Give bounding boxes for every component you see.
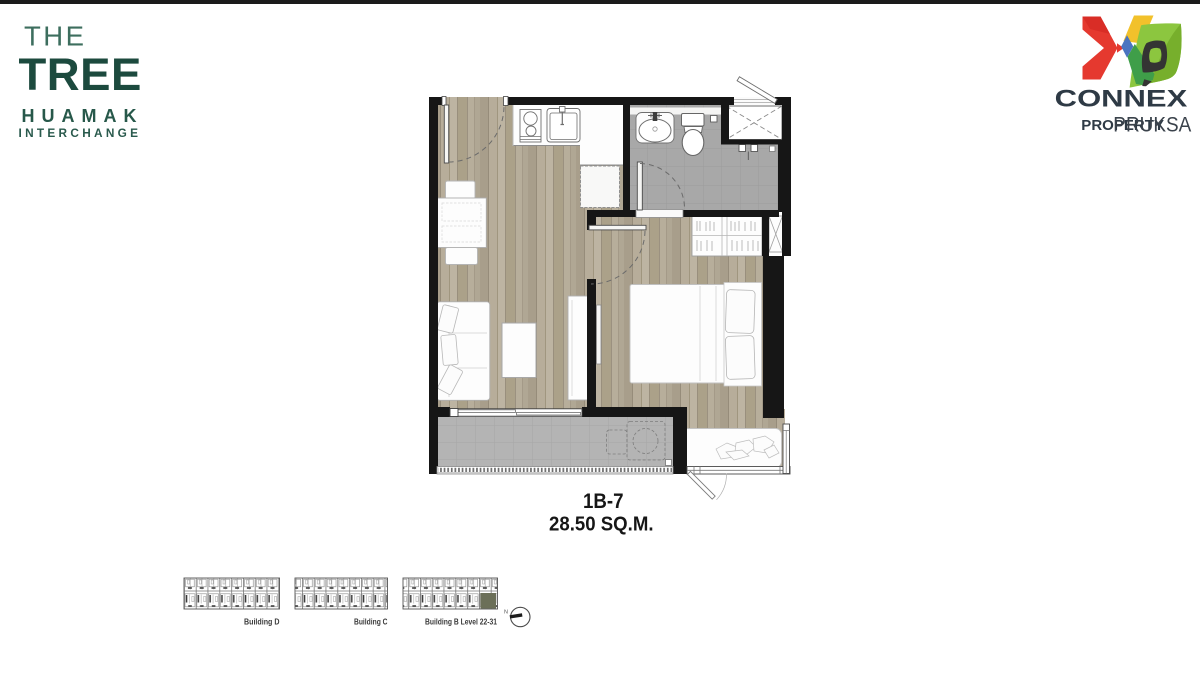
svg-text:Building D: Building D: [244, 618, 280, 627]
svg-text:N: N: [504, 610, 508, 616]
svg-text:PRUKSA: PRUKSA: [1113, 112, 1192, 136]
svg-text:1B-7: 1B-7: [583, 489, 624, 513]
svg-text:Building B Level 22-31: Building B Level 22-31: [425, 618, 498, 627]
svg-text:28.50 SQ.M.: 28.50 SQ.M.: [549, 514, 654, 536]
svg-text:INTERCHANGE: INTERCHANGE: [19, 126, 139, 140]
svg-text:THE: THE: [24, 21, 87, 52]
svg-text:CONNEX: CONNEX: [1055, 85, 1188, 112]
svg-text:TREE: TREE: [19, 49, 142, 100]
svg-text:Building C: Building C: [354, 618, 388, 627]
